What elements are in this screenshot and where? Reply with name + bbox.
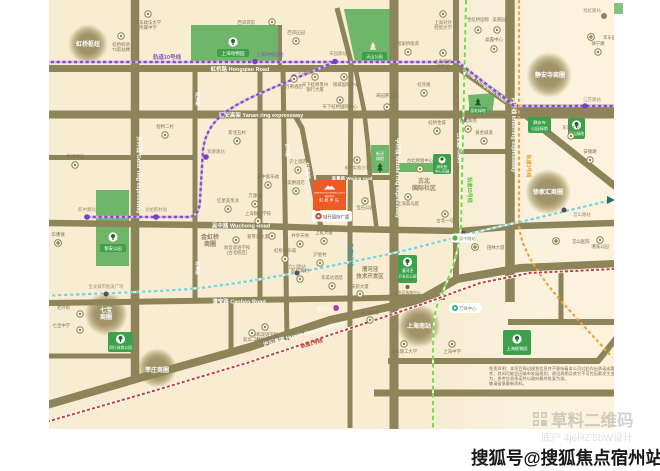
svg-text:开发区购物中心: 开发区购物中心 xyxy=(394,290,421,295)
svg-text:吴中家乐福: 吴中家乐福 xyxy=(257,173,280,180)
svg-text:中心花园: 中心花园 xyxy=(435,169,450,174)
svg-text:航华二村: 航华二村 xyxy=(243,336,261,343)
svg-text:东华大学: 东华大学 xyxy=(562,124,580,131)
svg-text:安顺路: 安顺路 xyxy=(583,148,597,155)
svg-text:T2航站楼: T2航站楼 xyxy=(112,46,131,53)
svg-text:上海植物园: 上海植物园 xyxy=(507,345,528,352)
svg-text:宝龙城市批发广场: 宝龙城市批发广场 xyxy=(88,283,124,290)
svg-text:紫藤路站: 紫藤路站 xyxy=(207,148,225,155)
svg-text:上海动物园: 上海动物园 xyxy=(222,50,245,57)
svg-text:光大会展: 光大会展 xyxy=(361,309,379,316)
svg-text:古北一号: 古北一号 xyxy=(436,217,454,224)
svg-text:龙柏新村站: 龙柏新村站 xyxy=(145,206,168,213)
svg-text:吴中路站: 吴中路站 xyxy=(459,235,476,242)
svg-text:新泾五村: 新泾五村 xyxy=(228,129,246,136)
svg-text:城开国际广厦: 城开国际广厦 xyxy=(323,213,350,220)
svg-text:爱博家园: 爱博家园 xyxy=(66,153,84,160)
svg-text:古北路 Gubei: 古北路 Gubei xyxy=(456,133,463,164)
svg-text:古北: 古北 xyxy=(418,177,430,185)
svg-text:天阶大厦: 天阶大厦 xyxy=(351,283,369,290)
svg-text:漕河泾: 漕河泾 xyxy=(362,265,379,273)
svg-text:华漕镇: 华漕镇 xyxy=(51,231,65,238)
svg-text:搜狐号@搜狐焦点宿州站: 搜狐号@搜狐焦点宿州站 xyxy=(471,448,660,468)
svg-text:井亭天地: 井亭天地 xyxy=(291,232,309,239)
svg-text:宜山医院: 宜山医院 xyxy=(572,238,590,245)
svg-text:商圈: 商圈 xyxy=(100,313,112,321)
svg-text:万蒂酒店: 万蒂酒店 xyxy=(285,83,303,90)
svg-text:虹桥枢纽: 虹桥枢纽 xyxy=(76,40,100,48)
svg-text:漕河泾: 漕河泾 xyxy=(402,268,414,273)
svg-text:天下虹桥国际中心: 天下虹桥国际中心 xyxy=(322,103,358,110)
svg-text:七宝: 七宝 xyxy=(100,306,112,314)
svg-text:商圈: 商圈 xyxy=(204,240,216,248)
svg-text:上虹大厦: 上虹大厦 xyxy=(315,229,333,236)
svg-text:宝石公园: 宝石公园 xyxy=(356,204,374,211)
svg-text:国际社区: 国际社区 xyxy=(412,184,436,192)
svg-text:淞虹路站: 淞虹路站 xyxy=(583,7,601,14)
svg-text:开发区公园: 开发区公园 xyxy=(399,274,417,279)
svg-text:轨道15号线: 轨道15号线 xyxy=(466,177,473,203)
svg-text:金虹桥: 金虹桥 xyxy=(200,233,220,241)
svg-text:(古北校区): (古北校区) xyxy=(227,249,248,256)
svg-text:上海动物园站: 上海动物园站 xyxy=(256,51,284,58)
svg-text:七宝中学: 七宝中学 xyxy=(52,322,70,329)
svg-text:万体中心: 万体中心 xyxy=(459,305,477,312)
svg-text:西郊宾馆: 西郊宾馆 xyxy=(237,19,255,26)
svg-text:万源城: 万源城 xyxy=(248,192,262,199)
svg-text:美丽园: 美丽园 xyxy=(492,16,506,23)
svg-text:西郊庄园: 西郊庄园 xyxy=(287,29,305,36)
svg-text:合川路: 合川路 xyxy=(284,143,291,157)
svg-text:虹桥永乐城: 虹桥永乐城 xyxy=(274,247,297,254)
svg-text:古北财富中心: 古北财富中心 xyxy=(407,157,434,164)
svg-text:黎安公园: 黎安公园 xyxy=(104,245,122,252)
svg-text:银城国际中心: 银城国际中心 xyxy=(333,81,360,88)
svg-text:内环线 Innerring expressway: 内环线 Innerring expressway xyxy=(510,98,518,174)
svg-text:华美达酒店: 华美达酒店 xyxy=(321,274,344,281)
svg-text:宋园茶艺馆: 宋园茶艺馆 xyxy=(376,92,399,99)
svg-text:上海银行学校: 上海银行学校 xyxy=(245,210,272,217)
svg-text:美爵酒店: 美爵酒店 xyxy=(287,179,305,186)
svg-text:黄金城道: 黄金城道 xyxy=(475,129,493,136)
svg-text:附属中学: 附属中学 xyxy=(139,24,157,31)
svg-text:田林大厦: 田林大厦 xyxy=(487,244,505,251)
svg-text:程家桥街道: 程家桥街道 xyxy=(397,40,420,47)
svg-text:天山公园: 天山公园 xyxy=(366,53,383,60)
svg-text:公园绿地: 公园绿地 xyxy=(531,125,549,132)
svg-text:虹井路: 虹井路 xyxy=(194,92,201,106)
svg-text:静安寺: 静安寺 xyxy=(533,119,546,126)
svg-text:底户 4j6HZ'5bW设计: 底户 4j6HZ'5bW设计 xyxy=(541,431,633,444)
svg-text:漕溪公园: 漕溪公园 xyxy=(591,243,609,250)
svg-text:外环线 Outer ring expressway: 外环线 Outer ring expressway xyxy=(135,136,143,214)
svg-text:上海中学: 上海中学 xyxy=(443,348,461,355)
svg-text:江苏路站: 江苏路站 xyxy=(583,96,601,103)
svg-text:宋园路站: 宋园路站 xyxy=(329,50,347,57)
svg-text:虹桥半岛: 虹桥半岛 xyxy=(319,197,340,204)
svg-text:金虹桥国际: 金虹桥国际 xyxy=(467,16,490,23)
svg-text:静安寺商圈: 静安寺商圈 xyxy=(535,71,565,79)
svg-text:宜山路站: 宜山路站 xyxy=(573,211,591,218)
svg-text:延安高架 Yanan ring expressway: 延安高架 Yanan ring expressway xyxy=(218,111,304,119)
svg-text:航华新村: 航华新村 xyxy=(291,267,309,274)
svg-text:轨道9号线: 轨道9号线 xyxy=(347,244,354,267)
svg-text:红星美凯龙: 红星美凯龙 xyxy=(217,197,240,204)
svg-text:程桥二村: 程桥二村 xyxy=(156,123,174,130)
svg-text:长宁实验小学: 长宁实验小学 xyxy=(344,164,369,171)
svg-text:上海南站: 上海南站 xyxy=(407,322,431,330)
svg-text:虹许路: 虹许路 xyxy=(417,81,431,88)
svg-text:草料二维码: 草料二维码 xyxy=(551,410,634,430)
svg-text:敬请留意最新资料。: 敬请留意最新资料。 xyxy=(489,380,527,387)
svg-text:延虹绿地: 延虹绿地 xyxy=(470,108,485,113)
svg-text:老外街: 老外街 xyxy=(57,304,71,311)
svg-text:锦江乐园: 锦江乐园 xyxy=(316,306,334,313)
svg-text:银行大厦: 银行大厦 xyxy=(306,86,324,93)
svg-text:莘庄商圈: 莘庄商圈 xyxy=(145,366,169,374)
svg-text:迎宾馆: 迎宾馆 xyxy=(436,63,450,70)
svg-text:古北新苑: 古北新苑 xyxy=(459,117,477,124)
svg-text:经贸大学: 经贸大学 xyxy=(434,24,452,31)
svg-text:航中路站: 航中路站 xyxy=(78,206,96,213)
svg-text:爱琴海大厦: 爱琴海大厦 xyxy=(247,233,270,240)
svg-text:沪星村: 沪星村 xyxy=(313,251,327,258)
svg-text:轨道3号线: 轨道3号线 xyxy=(525,155,532,178)
svg-text:晶露中心: 晶露中心 xyxy=(485,36,503,43)
svg-text:镇宁路: 镇宁路 xyxy=(591,40,605,47)
svg-text:华东理工大学: 华东理工大学 xyxy=(391,348,418,355)
svg-text:技术开发区: 技术开发区 xyxy=(356,272,384,280)
svg-text:漕宝路 Caobao Road: 漕宝路 Caobao Road xyxy=(212,298,265,306)
svg-text:轨道10号线: 轨道10号线 xyxy=(153,53,182,61)
svg-text:虹莘路: 虹莘路 xyxy=(194,261,201,275)
svg-text:沪上酒店: 沪上酒店 xyxy=(289,158,307,165)
svg-text:徐家汇商圈: 徐家汇商圈 xyxy=(532,188,563,196)
svg-text:吴中路 Wuchong Road: 吴中路 Wuchong Road xyxy=(212,222,270,230)
svg-text:闵行体育公园: 闵行体育公园 xyxy=(109,345,132,350)
svg-text:绿地: 绿地 xyxy=(376,155,384,161)
svg-text:虹桥路 Hongqiao Road: 虹桥路 Hongqiao Road xyxy=(211,65,270,73)
svg-text:虹桥金城: 虹桥金城 xyxy=(428,119,446,126)
svg-text:上海高岛屋: 上海高岛屋 xyxy=(397,200,420,207)
svg-text:中环线 Middle ring expressway: 中环线 Middle ring expressway xyxy=(394,138,402,219)
svg-text:新虹桥: 新虹桥 xyxy=(437,164,448,169)
